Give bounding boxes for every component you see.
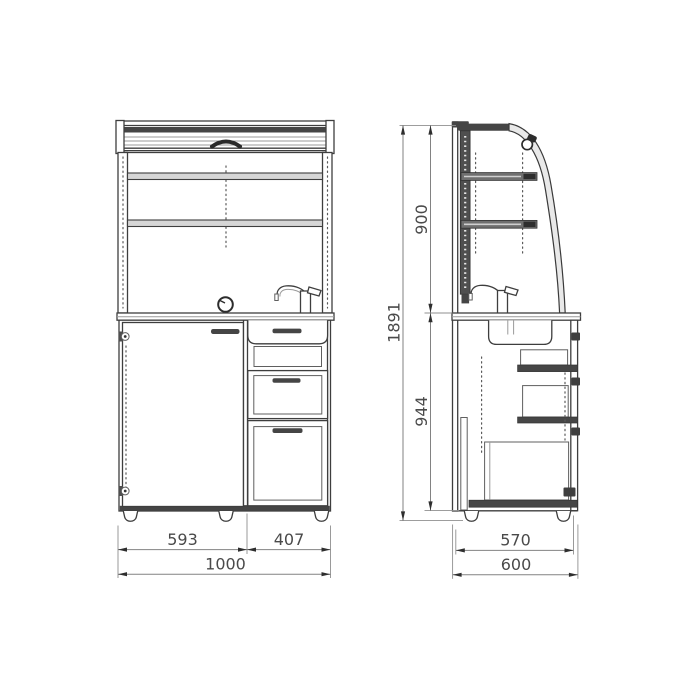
dim-label-total-width: 1000 [205, 554, 246, 573]
faucet-tip [469, 294, 472, 301]
front-clip [572, 378, 581, 386]
front-wall [571, 320, 578, 511]
front-clip [564, 488, 576, 497]
dimension-arrow [401, 125, 405, 134]
shelf-end-cap [524, 174, 536, 179]
dimension-arrow [118, 548, 127, 552]
side-shelf-upper [461, 173, 537, 181]
back-panel-lower-strip [461, 418, 467, 511]
cabinet-door [123, 323, 244, 507]
bottom-drawer-handle [273, 428, 303, 433]
lower-shelf [128, 220, 323, 227]
drawer-rail-a [518, 365, 578, 372]
front-dimensions: 593 407 1000 [118, 514, 331, 579]
dimension-arrow [118, 572, 127, 576]
foot-front [556, 511, 570, 521]
bottom-panel [469, 500, 578, 507]
dimension-arrow [238, 548, 247, 552]
middle-drawer-section [523, 386, 569, 417]
dim-label-drawers-width: 407 [274, 530, 305, 549]
sink-drawer-handle [273, 329, 302, 334]
header-right-cap [326, 121, 334, 154]
shutter-slat-band [124, 127, 326, 133]
bottom-drawer-section [485, 442, 569, 500]
wall-rail-end [462, 294, 470, 303]
shelf-end-cap [524, 222, 536, 227]
front-view: 593 407 1000 [116, 121, 334, 579]
dim-label-door-width: 593 [167, 530, 198, 549]
faucet-body [301, 291, 311, 314]
hinge-pin [124, 335, 127, 338]
top-drawer-section [521, 350, 568, 365]
foot-left [123, 511, 137, 521]
dimension-arrow [322, 548, 331, 552]
side-view: 1891 900 944 570 600 [385, 121, 581, 579]
header-left-cap [116, 121, 124, 154]
hinge-bottom [119, 486, 129, 496]
side-height-dimensions: 1891 900 944 [385, 125, 463, 520]
hinge-pin [124, 490, 127, 493]
front-clip [572, 333, 581, 341]
dimension-arrow [247, 548, 256, 552]
dimension-arrow [569, 573, 578, 577]
faucet-spout-inner [280, 289, 303, 296]
dimension-arrow [453, 573, 462, 577]
hutch-header [116, 121, 334, 154]
base-cabinet-side [458, 320, 580, 511]
dim-label-inner-depth: 570 [500, 531, 531, 550]
drawing-svg: 593 407 1000 [0, 0, 700, 700]
dim-label-lower-height: 944 [412, 396, 431, 427]
dimension-arrow [401, 511, 405, 520]
side-shelf-lower [461, 220, 537, 228]
faucet-body [498, 291, 508, 314]
dimension-arrow [322, 572, 331, 576]
base-cabinet-front [119, 320, 331, 511]
dimension-arrow [428, 304, 432, 313]
dimension-arrow [428, 313, 432, 322]
dimension-arrow [428, 501, 432, 510]
side-depth-dimensions: 570 600 [453, 516, 578, 579]
bottom-drawer-front [254, 427, 322, 501]
foot-center [219, 511, 233, 521]
divider-panel [244, 320, 248, 506]
front-clip [572, 428, 581, 436]
dim-label-upper-height: 900 [412, 204, 431, 235]
sink-bowl-section [489, 320, 552, 344]
dimension-arrow [428, 125, 432, 134]
door-handle [211, 329, 240, 334]
foot-back [464, 511, 478, 521]
open-compartment [254, 347, 322, 367]
drawer-rail-b [518, 417, 578, 423]
dimension-arrow [456, 548, 465, 552]
knob [218, 297, 233, 312]
faucet-tip [275, 294, 278, 301]
knob-ring [218, 297, 233, 312]
hinge-top [119, 332, 129, 342]
technical-drawing-canvas: 593 407 1000 [0, 0, 700, 700]
faucet-side [469, 285, 518, 313]
dim-label-total-height: 1891 [385, 302, 404, 343]
front-feet [123, 511, 328, 521]
middle-drawer-handle [273, 378, 301, 383]
faucet-spout [471, 285, 500, 296]
side-feet [464, 511, 570, 521]
upper-shelf [128, 173, 323, 180]
faucet-front [275, 286, 321, 314]
shutter-curve-track [509, 124, 565, 313]
foot-right [314, 511, 328, 521]
dim-label-total-depth: 600 [501, 555, 532, 574]
top-rail [458, 124, 509, 131]
dimension-arrow [565, 548, 574, 552]
drawer-stack [248, 320, 328, 506]
